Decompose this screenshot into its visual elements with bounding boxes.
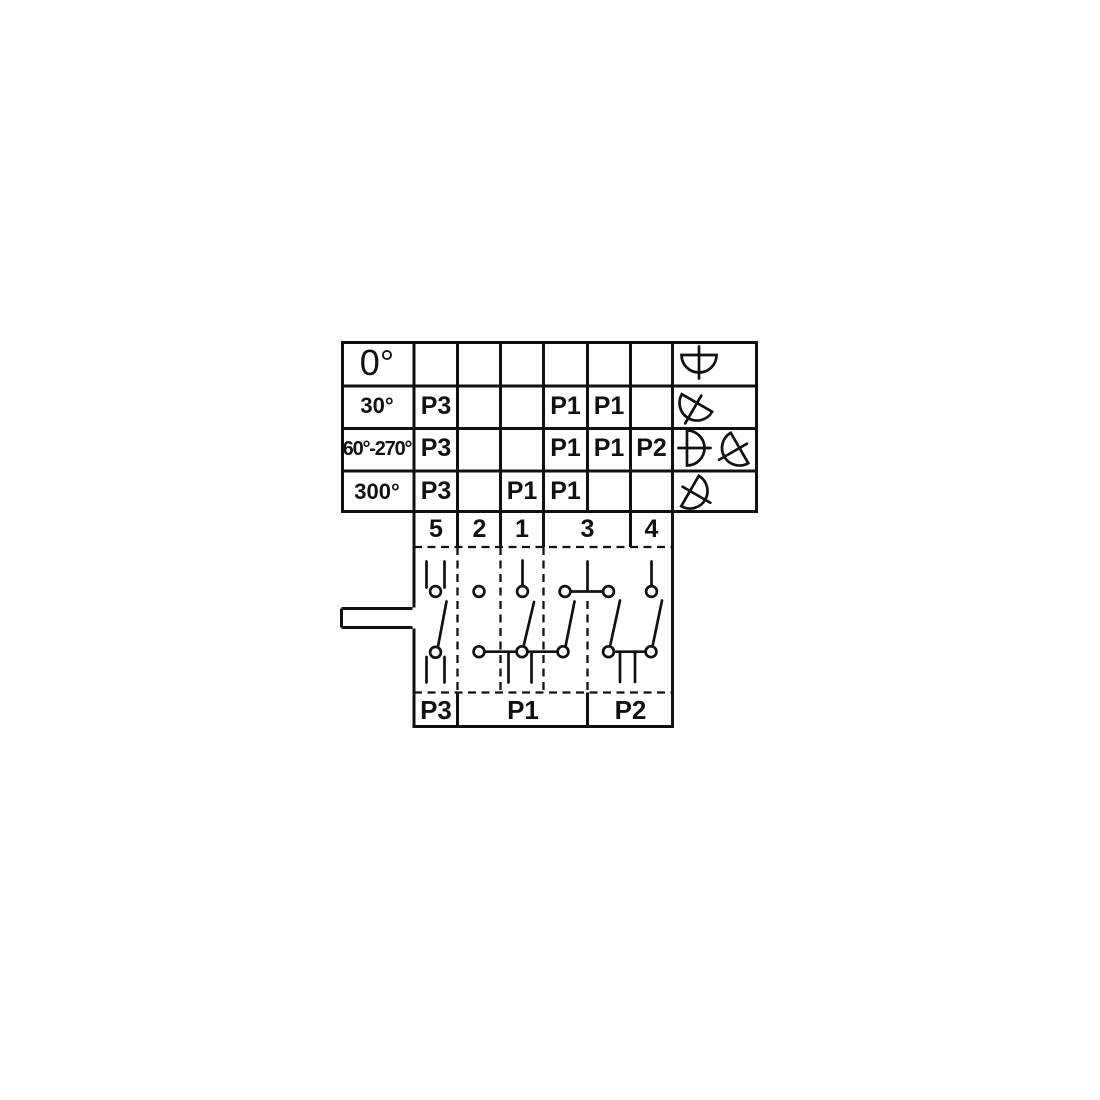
table-cell: P3 xyxy=(414,470,458,513)
table-cell: P1 xyxy=(500,470,544,513)
contact-terminal-lines xyxy=(427,561,652,683)
contact-number-5: 5 xyxy=(414,513,458,546)
knob-position-30deg-icon xyxy=(670,387,716,432)
table-cell xyxy=(458,385,501,427)
knob-position-270deg-icon xyxy=(679,431,711,466)
pole-label-p1: P1 xyxy=(458,694,588,726)
contact-number-3: 3 xyxy=(544,513,631,546)
contact-number-1: 1 xyxy=(500,513,544,546)
shaft xyxy=(342,609,413,628)
table-cell: P1 xyxy=(544,427,587,470)
table-cell xyxy=(414,341,458,385)
table-cell xyxy=(458,341,501,385)
contact-number-2: 2 xyxy=(458,513,501,546)
knob-position-60deg-icon xyxy=(710,429,755,475)
angle-label-30: 30° xyxy=(341,385,413,427)
angle-label-0: 0° xyxy=(341,341,413,385)
table-cell: P1 xyxy=(544,470,587,513)
table-cell: P1 xyxy=(544,385,587,427)
table-cell xyxy=(630,470,673,513)
table-cell xyxy=(587,341,631,385)
table-cell xyxy=(500,385,544,427)
table-cell: P1 xyxy=(587,385,631,427)
table-cell: P3 xyxy=(414,385,458,427)
contact-levers xyxy=(438,601,662,647)
diagram-linework xyxy=(0,0,1100,1100)
table-cell xyxy=(630,385,673,427)
pole-label-p3: P3 xyxy=(414,694,458,726)
pole-label-p2: P2 xyxy=(588,694,673,726)
rotary-switch-position-diagram: 0° 30° 60°-270° 300° P3 P1 P1 P3 P1 P1 P… xyxy=(0,0,1100,1100)
table-cell xyxy=(587,470,631,513)
table-cell: P1 xyxy=(587,427,631,470)
contact-number-4: 4 xyxy=(630,513,673,546)
knob-position-0deg-icon xyxy=(682,347,717,379)
table-cell xyxy=(500,341,544,385)
table-cell xyxy=(458,470,501,513)
table-cell xyxy=(544,341,587,385)
table-cell: P2 xyxy=(630,427,673,470)
table-cell xyxy=(500,427,544,470)
angle-label-60-270: 60°-270° xyxy=(341,427,413,470)
table-cell xyxy=(458,427,501,470)
table-cell xyxy=(630,341,673,385)
angle-label-300: 300° xyxy=(341,470,413,513)
table-cell: P3 xyxy=(414,427,458,470)
